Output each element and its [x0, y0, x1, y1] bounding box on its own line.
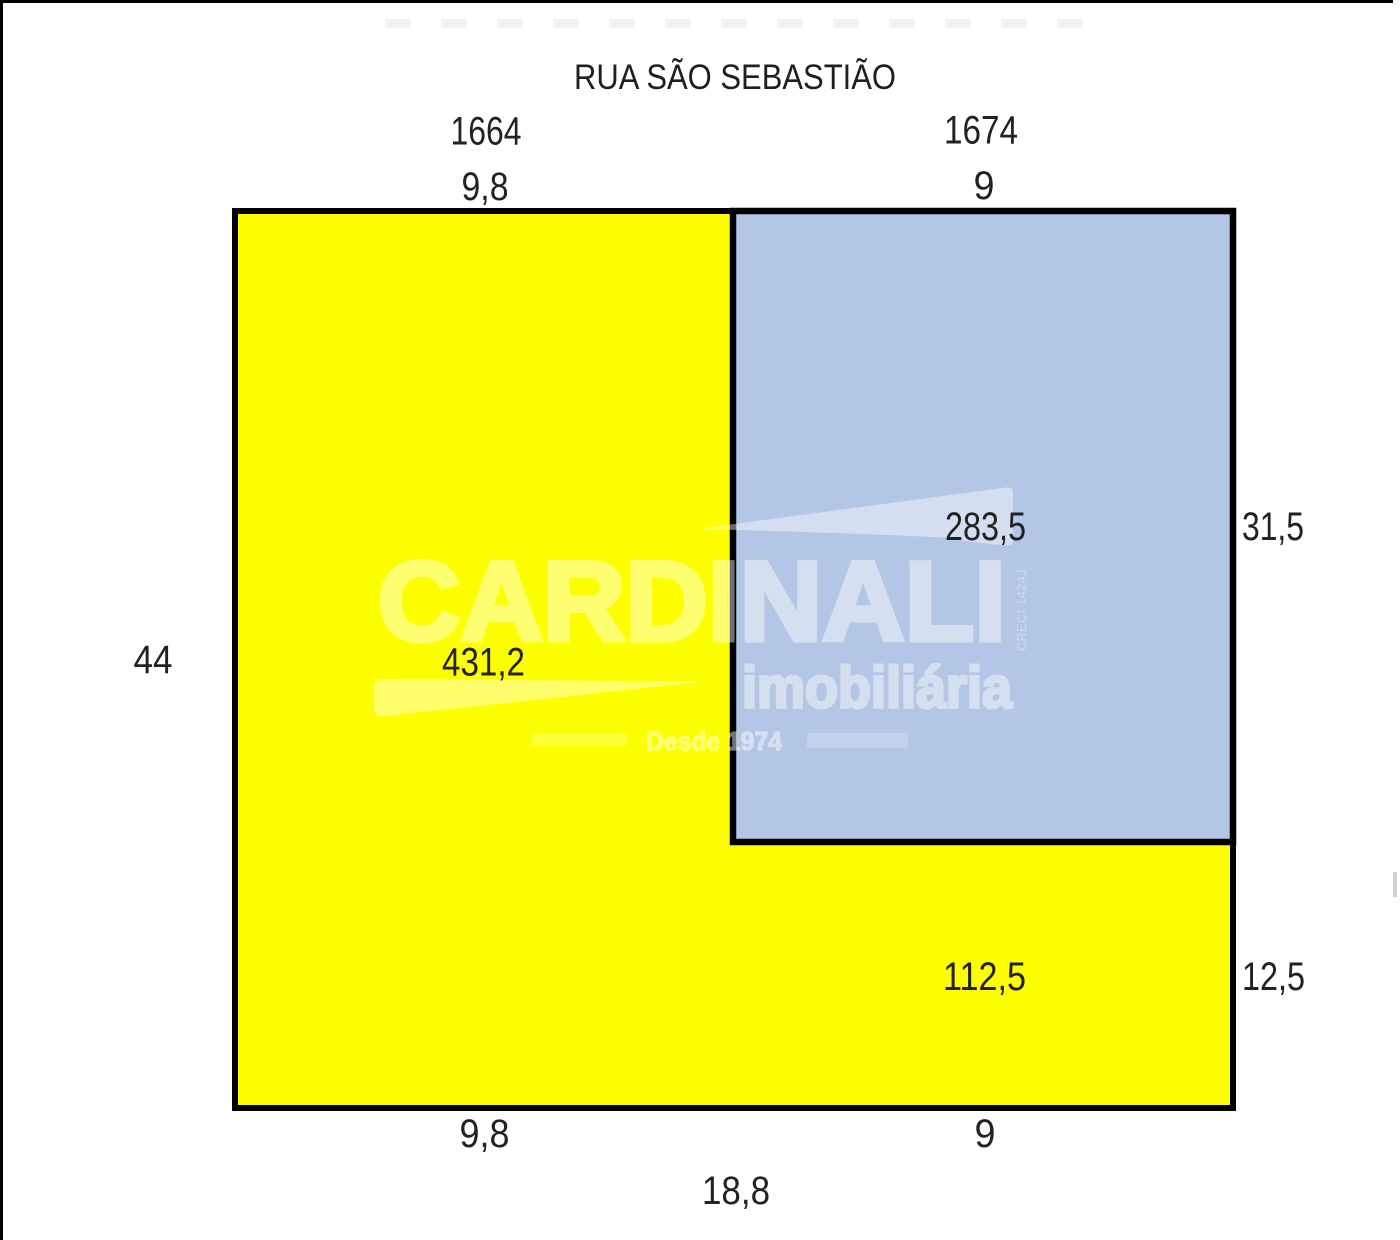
svg-text:9,8: 9,8 — [462, 165, 509, 209]
svg-text:18,8: 18,8 — [702, 1169, 770, 1213]
svg-text:12,5: 12,5 — [1242, 955, 1305, 999]
svg-text:283,5: 283,5 — [945, 505, 1026, 549]
svg-text:9: 9 — [974, 164, 995, 208]
svg-text:1664: 1664 — [451, 110, 522, 154]
svg-text:112,5: 112,5 — [943, 955, 1026, 999]
svg-text:imobiliária: imobiliária — [742, 656, 1013, 721]
svg-text:9,8: 9,8 — [460, 1112, 510, 1156]
svg-text:Desde 1974: Desde 1974 — [646, 726, 783, 756]
svg-text:RUA SÃO SEBASTIÃO: RUA SÃO SEBASTIÃO — [574, 58, 896, 97]
svg-text:CRECI 1424J: CRECI 1424J — [1015, 569, 1029, 651]
svg-text:1674: 1674 — [944, 109, 1018, 153]
svg-text:44: 44 — [134, 638, 173, 682]
svg-text:31,5: 31,5 — [1242, 505, 1304, 549]
svg-text:431,2: 431,2 — [442, 641, 525, 685]
svg-text:9: 9 — [975, 1112, 996, 1156]
